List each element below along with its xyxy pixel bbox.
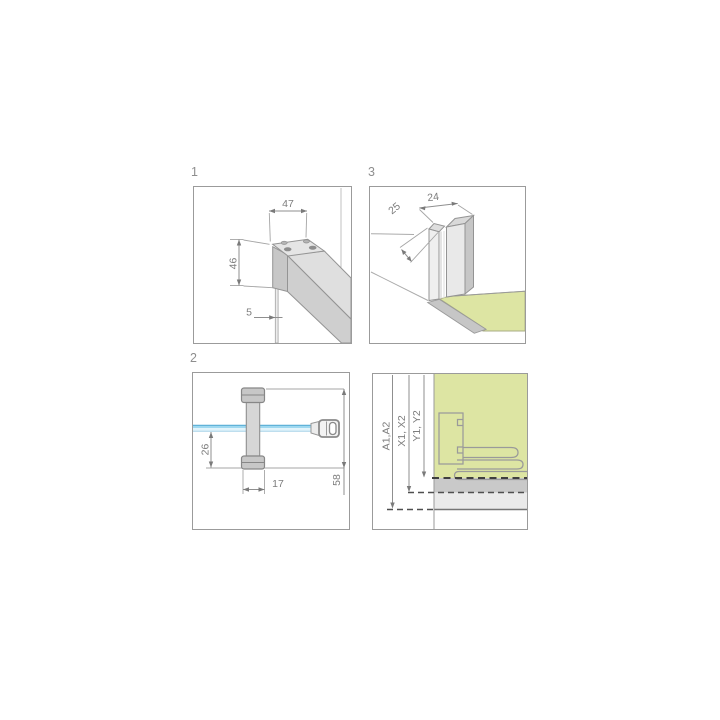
dim-46-label: 46 <box>228 258 240 270</box>
knob-slot <box>330 423 337 435</box>
dim-17-label: 17 <box>272 478 284 490</box>
dim-x-label: X1, X2 <box>396 415 408 447</box>
wall-profile-drawing: 24 25 <box>370 187 525 343</box>
glass-panel-edge <box>275 288 278 344</box>
dim-a-label: A1,A2 <box>381 422 393 451</box>
panel-1-number: 1 <box>191 166 198 179</box>
detail-panel-wall-profile: 24 25 <box>369 186 526 344</box>
screw-hole <box>309 246 317 250</box>
dim-58: 58 <box>331 389 346 495</box>
stabilizer-drawing: 26 58 17 <box>193 373 349 529</box>
detail-panel-bracket: 47 46 5 <box>193 186 352 344</box>
dim-y-label: Y1, Y2 <box>411 410 423 441</box>
detail-panel-heights: A1,A2 X1, X2 Y1, Y2 <box>372 373 528 530</box>
tray-flange-band <box>434 478 527 493</box>
bracket-drawing: 47 46 5 <box>194 187 351 343</box>
product-technical-diagram: 1 3 2 <box>0 0 720 720</box>
dim-26: 26 <box>200 432 214 468</box>
dim-47-label: 47 <box>282 198 294 210</box>
tray-band <box>434 493 527 510</box>
screw-hole <box>284 247 292 251</box>
dim-5-label: 5 <box>246 307 252 319</box>
glass-panel-green <box>434 374 527 478</box>
screw-hole <box>281 241 287 244</box>
wall-anchor-knob <box>319 420 339 437</box>
dim-26-label: 26 <box>200 444 212 456</box>
dim-24-label: 24 <box>427 191 440 204</box>
wall-and-floor-lines <box>371 234 428 301</box>
dim-58-label: 58 <box>331 474 343 486</box>
dim-25-label: 25 <box>386 200 403 217</box>
wall-profile-channel <box>429 216 474 301</box>
wall-anchor-neck <box>311 422 319 436</box>
height-reference-drawing: A1,A2 X1, X2 Y1, Y2 <box>373 374 527 529</box>
dim-46: 46 <box>228 240 273 288</box>
panel-3-number: 3 <box>368 166 375 179</box>
dim-17: 17 <box>243 470 284 494</box>
panel-2-number: 2 <box>190 352 197 365</box>
dim-x1-x2: X1, X2 <box>396 375 411 492</box>
detail-panel-stabilizer: 26 58 17 <box>192 372 350 530</box>
dim-47: 47 <box>269 198 307 242</box>
dim-y1-y2: Y1, Y2 <box>411 375 426 478</box>
connector-shaft <box>246 403 259 457</box>
screw-hole <box>303 240 309 243</box>
dim-a1-a2: A1,A2 <box>381 375 395 509</box>
square-support-tube <box>273 247 351 343</box>
